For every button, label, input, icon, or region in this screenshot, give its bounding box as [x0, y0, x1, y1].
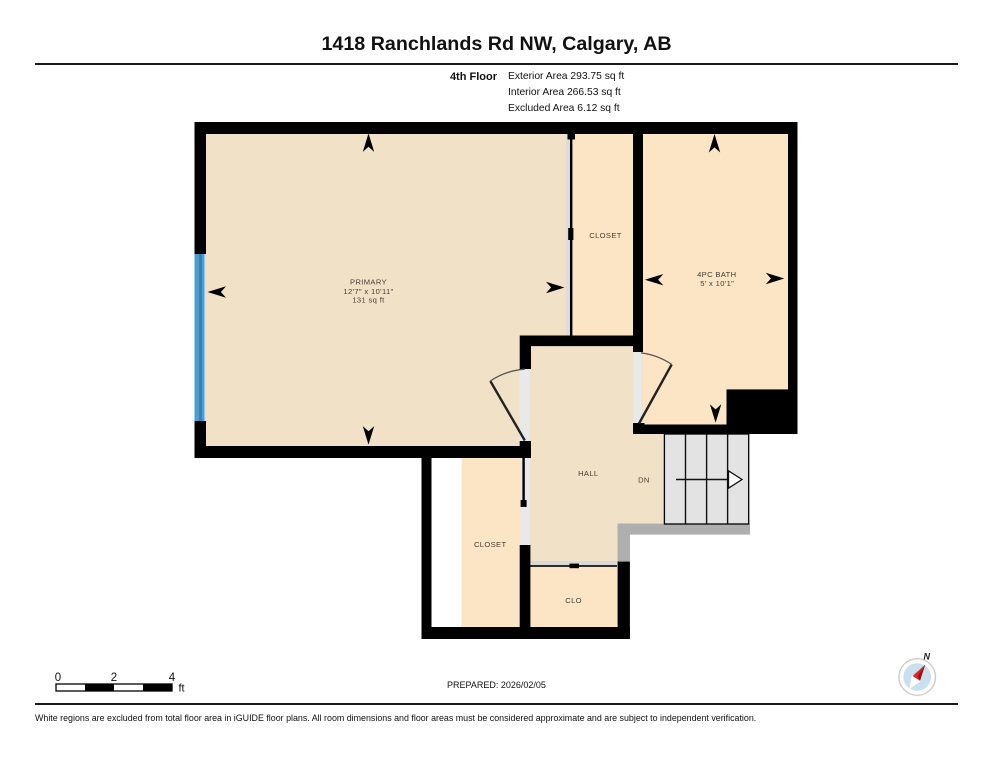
svg-text:DN: DN	[638, 476, 650, 485]
svg-text:HALL: HALL	[578, 469, 598, 478]
svg-text:PRIMARY: PRIMARY	[350, 278, 387, 287]
svg-text:CLOSET: CLOSET	[589, 231, 621, 240]
svg-text:N: N	[924, 652, 931, 662]
svg-text:5' x 10'1": 5' x 10'1"	[700, 279, 734, 288]
svg-text:CLO: CLO	[565, 596, 582, 605]
svg-text:12'7" x 10'11": 12'7" x 10'11"	[343, 287, 393, 296]
svg-text:4PC BATH: 4PC BATH	[697, 270, 736, 279]
svg-text:131 sq ft: 131 sq ft	[352, 296, 385, 305]
svg-text:CLOSET: CLOSET	[474, 540, 506, 549]
